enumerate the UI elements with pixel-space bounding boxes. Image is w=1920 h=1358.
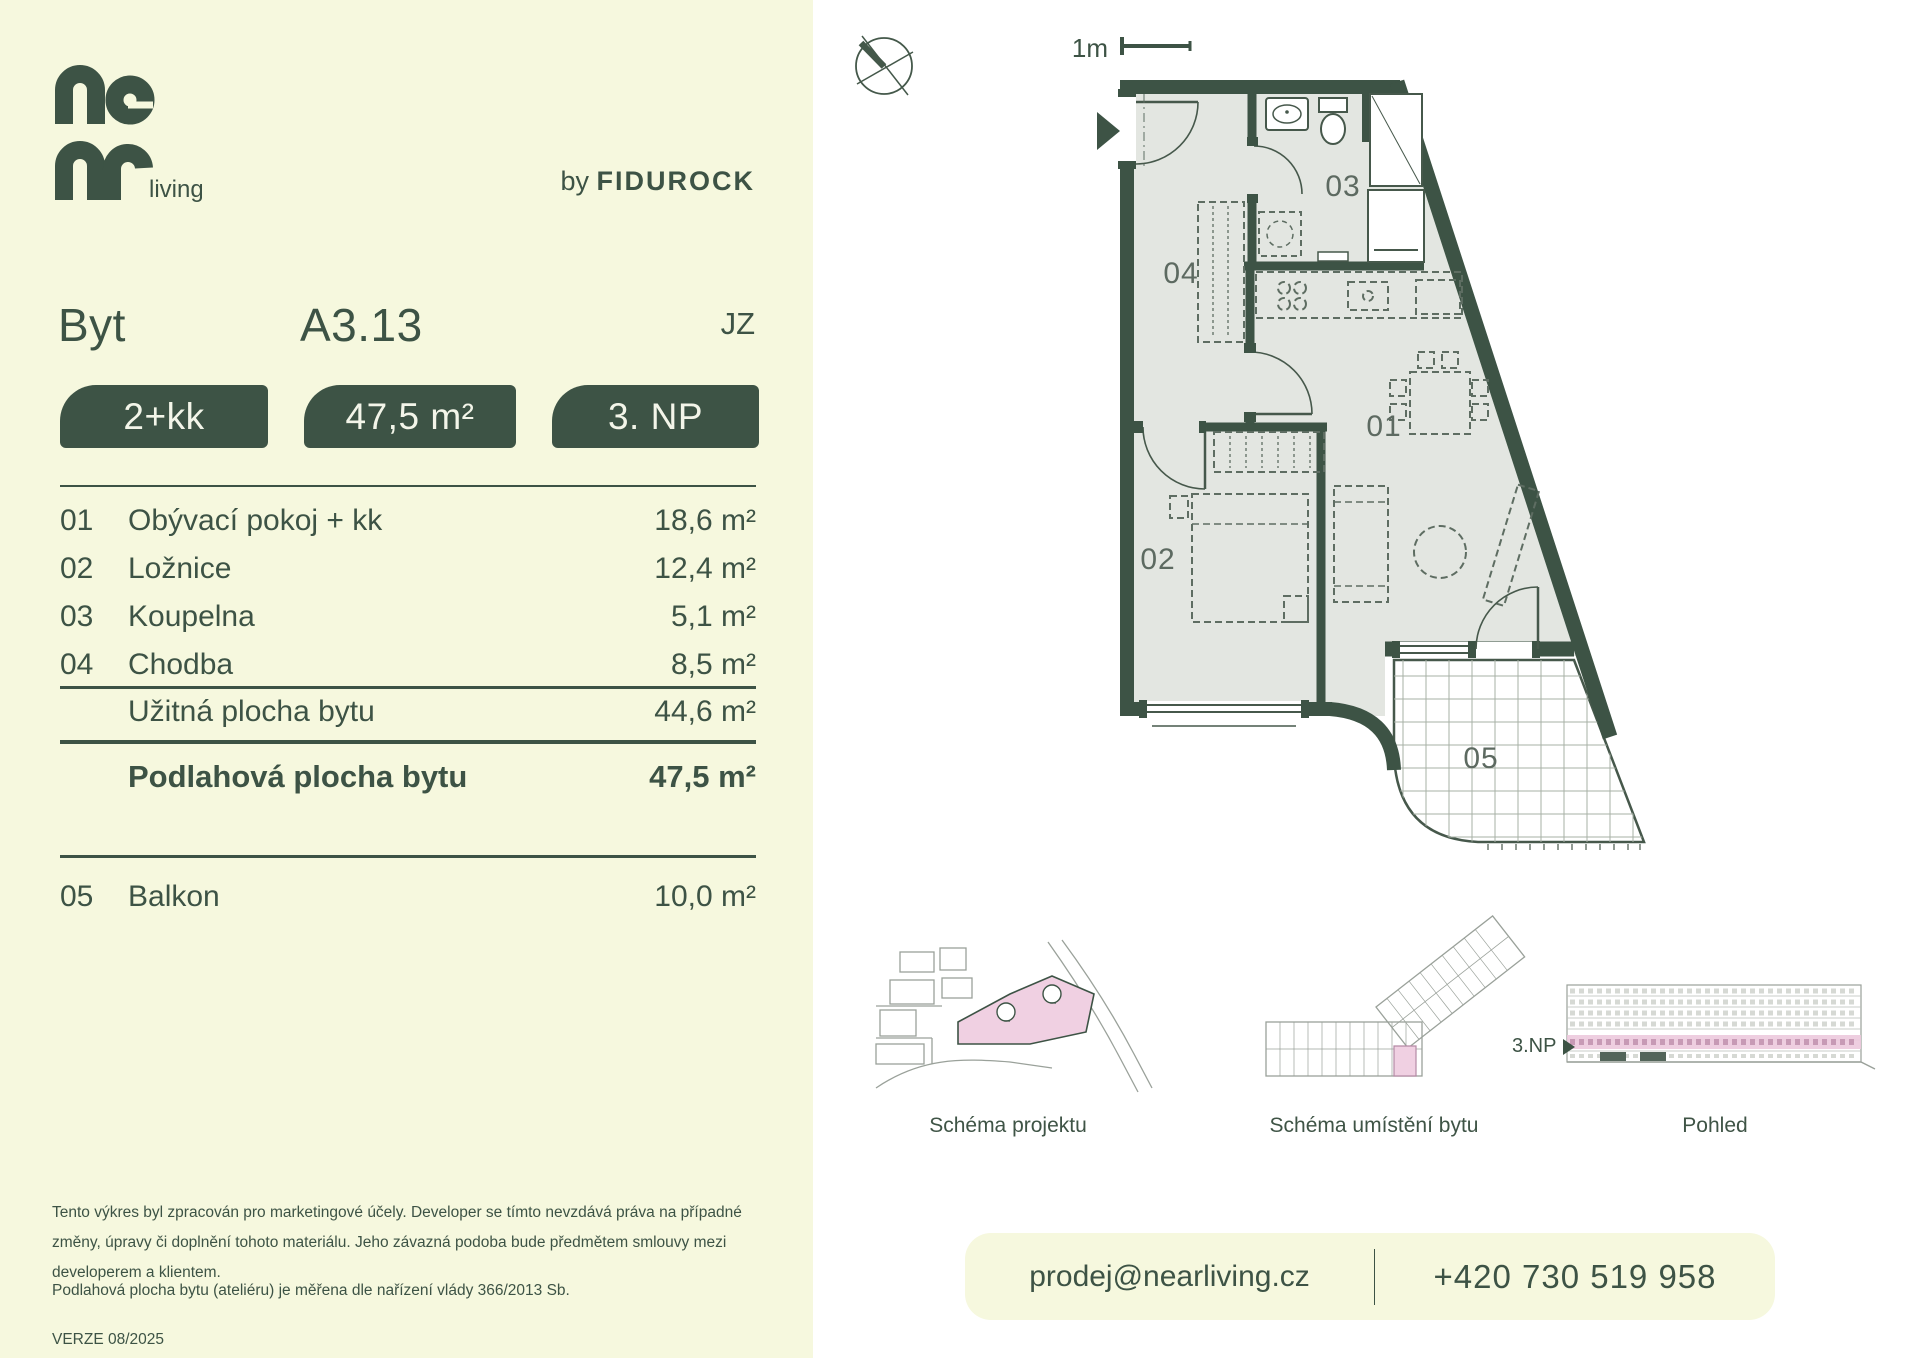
measurement-note: Podlahová plocha bytu (ateliéru) je měře… [52, 1276, 752, 1306]
info-panel: living by FIDUROCK Byt A3.13 JZ 2+kk 47,… [0, 0, 813, 1358]
floor-pointer: 3.NP [1512, 1035, 1575, 1058]
balcony-area [1390, 655, 1648, 850]
room-name: Obývací pokoj + kk [128, 503, 654, 539]
room-row: 03 Koupelna 5,1 m² [60, 599, 756, 635]
floor-area-label: Podlahová plocha bytu [128, 759, 649, 795]
room-area: 8,5 m² [671, 647, 756, 683]
usable-area-row: Užitná plocha bytu 44,6 m² [60, 694, 756, 730]
balcony-railing [1488, 844, 1640, 850]
balcony-number: 05 [60, 879, 128, 915]
apartment-card-page: living by FIDUROCK Byt A3.13 JZ 2+kk 47,… [0, 0, 1920, 1358]
doors-windows [1097, 89, 1540, 726]
room-label-01: 01 [1366, 410, 1401, 443]
byline-prefix: by [560, 166, 589, 196]
floor-area-value: 47,5 m² [649, 759, 756, 795]
outer-walls [1120, 80, 1610, 770]
balcony-grid [1390, 655, 1648, 845]
caption-elevation: Pohled [1565, 1114, 1865, 1138]
usable-area-value: 44,6 m² [654, 694, 756, 730]
room-number: 04 [60, 647, 128, 683]
room-row: 04 Chodba 8,5 m² [60, 647, 756, 683]
balcony-value: 10,0 m² [654, 879, 756, 915]
floor-area-row: Podlahová plocha bytu 47,5 m² [60, 759, 756, 795]
version-label: VERZE 08/2025 [52, 1325, 752, 1355]
partition-walls [1205, 94, 1424, 707]
caption-unit-location: Schéma umístění bytu [1224, 1114, 1524, 1138]
room-name: Ložnice [128, 551, 654, 587]
room-name: Koupelna [128, 599, 671, 635]
divider [60, 855, 756, 858]
divider [60, 740, 756, 744]
contact-phone[interactable]: +420 730 519 958 [1375, 1258, 1775, 1296]
entrance-arrow-icon [1097, 112, 1120, 150]
floor-pointer-arrow-icon [1563, 1039, 1575, 1055]
room-area: 18,6 m² [654, 503, 756, 539]
balcony-label: Balkon [128, 879, 654, 915]
room-row: 02 Ložnice 12,4 m² [60, 551, 756, 587]
room-number: 01 [60, 503, 128, 539]
divider [60, 485, 756, 487]
byline-brand: FIDUROCK [597, 166, 756, 196]
floor-pointer-label: 3.NP [1512, 1035, 1556, 1058]
scale-label: 1m [1072, 33, 1108, 63]
room-label-04: 04 [1163, 257, 1198, 290]
divider [60, 686, 756, 689]
compass-icon [856, 36, 913, 95]
elevation-schematic [1567, 985, 1875, 1069]
room-label-03: 03 [1325, 170, 1360, 203]
orientation-label: JZ [60, 306, 755, 342]
caption-site-schematic: Schéma projektu [858, 1114, 1158, 1138]
disclaimer-text: Tento výkres byl zpracován pro marketing… [52, 1198, 752, 1288]
badge-area: 47,5 m² [304, 385, 516, 448]
balcony-row: 05 Balkon 10,0 m² [60, 879, 756, 915]
room-label-05: 05 [1463, 742, 1498, 775]
room-label-02: 02 [1140, 543, 1175, 576]
room-name: Chodba [128, 647, 671, 683]
bathroom-fixtures [1259, 94, 1424, 262]
room-area: 5,1 m² [671, 599, 756, 635]
badge-layout: 2+kk [60, 385, 268, 448]
room-labels: 01 02 03 04 05 [1140, 170, 1498, 775]
room-row: 01 Obývací pokoj + kk 18,6 m² [60, 503, 756, 539]
badge-floor: 3. NP [552, 385, 759, 448]
contact-email[interactable]: prodej@nearliving.cz [965, 1260, 1374, 1294]
usable-area-label: Užitná plocha bytu [128, 694, 654, 730]
site-schematic [876, 940, 1152, 1092]
furniture [1170, 202, 1539, 622]
unit-location-schematic [1266, 916, 1525, 1076]
contact-bar: prodej@nearliving.cz +420 730 519 958 [965, 1233, 1775, 1320]
room-area: 12,4 m² [654, 551, 756, 587]
byline: by FIDUROCK [60, 166, 755, 197]
apartment-floor [1120, 80, 1584, 716]
scale-bar [1122, 37, 1190, 55]
room-number: 02 [60, 551, 128, 587]
room-number: 03 [60, 599, 128, 635]
